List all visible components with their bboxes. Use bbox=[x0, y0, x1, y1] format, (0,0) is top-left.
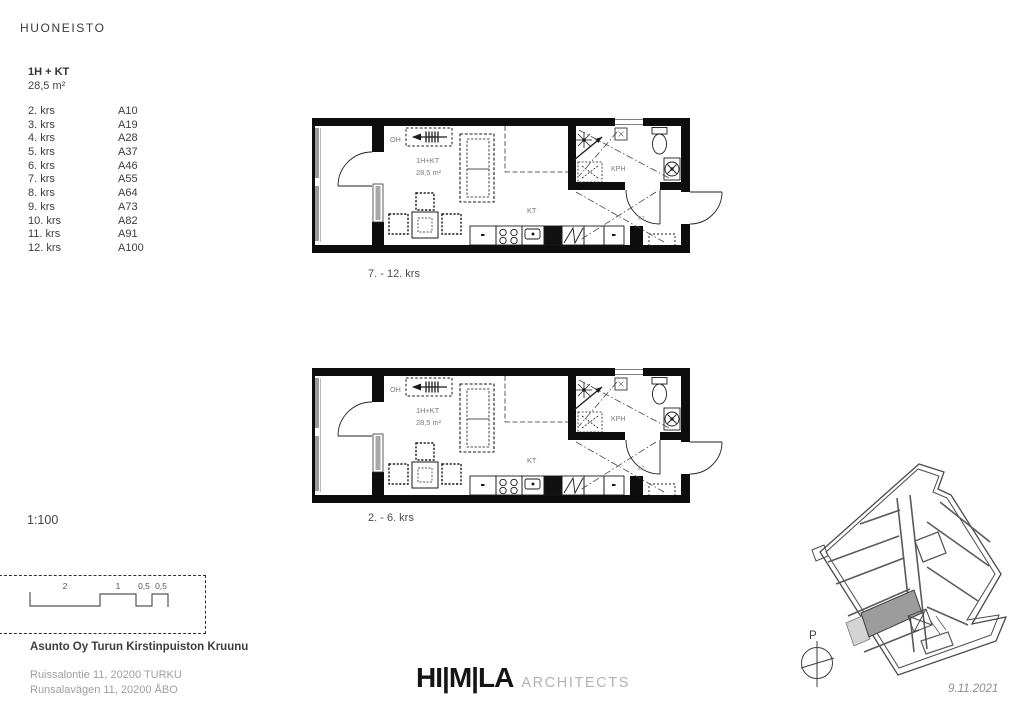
floor-label: 3. krs bbox=[28, 119, 118, 133]
page-title: HUONEISTO bbox=[20, 21, 106, 35]
unit-label: A100 bbox=[118, 242, 144, 256]
floor-row: 6. krsA46 bbox=[28, 160, 144, 174]
floor-label: 11. krs bbox=[28, 228, 118, 242]
scale-tick-2: 2 bbox=[63, 581, 68, 591]
north-compass: P bbox=[801, 630, 834, 687]
floor-label: 2. krs bbox=[28, 105, 118, 119]
floor-row: 11. krsA91 bbox=[28, 228, 144, 242]
floor-row: 3. krsA19 bbox=[28, 119, 144, 133]
floor-row: 2. krsA10 bbox=[28, 105, 144, 119]
floor-plan-2-6 bbox=[312, 364, 724, 512]
logo-suffix: ARCHITECTS bbox=[521, 674, 630, 693]
unit-label: A64 bbox=[118, 187, 138, 201]
floor-row: 9. krsA73 bbox=[28, 201, 144, 215]
floor-row: 8. krsA64 bbox=[28, 187, 144, 201]
floor-plan-sheet: HUONEISTO 1H + KT 28,5 m² 2. krsA10 3. k… bbox=[0, 0, 1024, 722]
floor-row: 7. krsA55 bbox=[28, 173, 144, 187]
unit-label: A10 bbox=[118, 105, 138, 119]
unit-label: A19 bbox=[118, 119, 138, 133]
floor-label: 9. krs bbox=[28, 201, 118, 215]
apartment-type: 1H + KT bbox=[28, 66, 69, 78]
floor-label: 7. krs bbox=[28, 173, 118, 187]
scale-tick-05b: 0,5 bbox=[155, 581, 167, 591]
unit-label: A82 bbox=[118, 215, 138, 229]
floor-row: 12. krsA100 bbox=[28, 242, 144, 256]
architect-logo: HI|M|LA ARCHITECTS bbox=[416, 663, 630, 693]
floor-unit-list: 2. krsA10 3. krsA19 4. krsA28 5. krsA37 … bbox=[28, 105, 144, 256]
apartment-area: 28,5 m² bbox=[28, 80, 65, 92]
address-sv: Runsalavägen 11, 20200 ÅBO bbox=[30, 683, 182, 698]
address-fi: Ruissalontie 11, 20200 TURKU bbox=[30, 668, 182, 683]
drawing-date: 9.11.2021 bbox=[948, 683, 998, 695]
floor-label: 6. krs bbox=[28, 160, 118, 174]
site-plan: P bbox=[800, 462, 1015, 704]
plan-caption-lower: 2. - 6. krs bbox=[368, 512, 414, 524]
floor-label: 4. krs bbox=[28, 132, 118, 146]
floor-label: 5. krs bbox=[28, 146, 118, 160]
unit-label: A28 bbox=[118, 132, 138, 146]
floor-label: 8. krs bbox=[28, 187, 118, 201]
floor-row: 10. krsA82 bbox=[28, 215, 144, 229]
floor-plan-7-12 bbox=[312, 114, 724, 262]
floor-row: 4. krsA28 bbox=[28, 132, 144, 146]
unit-label: A55 bbox=[118, 173, 138, 187]
project-name: Asunto Oy Turun Kirstinpuiston Kruunu bbox=[30, 641, 248, 653]
scale-tick-05a: 0,5 bbox=[138, 581, 150, 591]
scale-bar: 2 1 0,5 0,5 bbox=[0, 576, 203, 631]
scale-bar-box: 2 1 0,5 0,5 bbox=[0, 575, 206, 634]
floor-label: 10. krs bbox=[28, 215, 118, 229]
logo-wordmark: HI|M|LA bbox=[416, 663, 513, 693]
building-outline bbox=[812, 464, 1006, 675]
scale-tick-1: 1 bbox=[116, 581, 121, 591]
unit-label: A46 bbox=[118, 160, 138, 174]
plan-caption-upper: 7. - 12. krs bbox=[368, 268, 420, 280]
unit-label: A73 bbox=[118, 201, 138, 215]
floor-label: 12. krs bbox=[28, 242, 118, 256]
unit-label: A91 bbox=[118, 228, 138, 242]
north-label: P bbox=[809, 630, 817, 642]
project-address: Ruissalontie 11, 20200 TURKU Runsalaväge… bbox=[30, 668, 182, 697]
scale-label: 1:100 bbox=[27, 513, 58, 527]
unit-label: A37 bbox=[118, 146, 138, 160]
floor-row: 5. krsA37 bbox=[28, 146, 144, 160]
